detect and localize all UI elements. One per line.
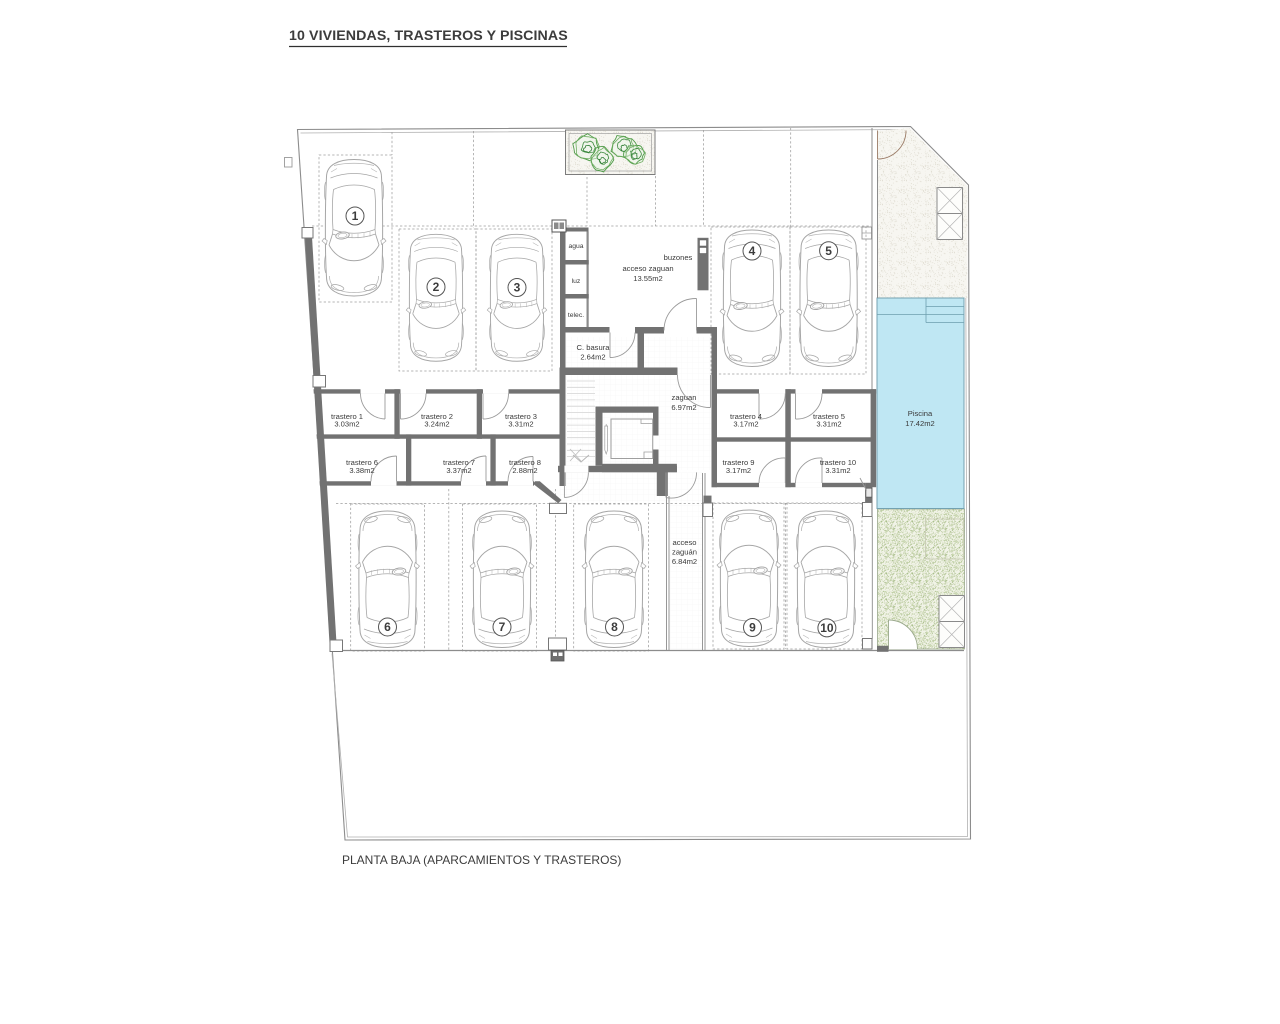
svg-text:13.55m2: 13.55m2 — [633, 274, 663, 283]
svg-text:3.31m2: 3.31m2 — [816, 420, 841, 429]
svg-text:6: 6 — [384, 620, 391, 634]
svg-text:3.31m2: 3.31m2 — [508, 420, 533, 429]
svg-text:3.17m2: 3.17m2 — [726, 466, 751, 475]
svg-text:3.38m2: 3.38m2 — [349, 466, 374, 475]
svg-text:PLANTA BAJA (APARCAMIENTOS Y T: PLANTA BAJA (APARCAMIENTOS Y TRASTEROS) — [342, 853, 621, 867]
svg-text:telec.: telec. — [568, 312, 584, 319]
svg-text:2.88m2: 2.88m2 — [512, 466, 537, 475]
svg-text:10: 10 — [820, 621, 834, 635]
svg-text:3.17m2: 3.17m2 — [733, 420, 758, 429]
svg-text:buzones: buzones — [664, 253, 693, 262]
svg-text:acceso: acceso — [672, 538, 696, 547]
svg-text:2.64m2: 2.64m2 — [580, 353, 605, 362]
svg-text:3.03m2: 3.03m2 — [334, 420, 359, 429]
svg-text:6.97m2: 6.97m2 — [671, 403, 696, 412]
svg-text:8: 8 — [611, 620, 618, 634]
svg-text:agua: agua — [568, 243, 583, 250]
svg-text:5: 5 — [825, 244, 832, 258]
svg-text:4: 4 — [749, 244, 756, 258]
svg-text:1: 1 — [352, 209, 359, 223]
svg-text:9: 9 — [749, 621, 756, 635]
svg-text:Piscina: Piscina — [908, 409, 933, 418]
svg-text:3.31m2: 3.31m2 — [825, 466, 850, 475]
svg-text:10 VIVIENDAS, TRASTEROS Y PISC: 10 VIVIENDAS, TRASTEROS Y PISCINAS — [289, 28, 568, 44]
svg-text:17.42m2: 17.42m2 — [905, 419, 935, 428]
svg-text:6.84m2: 6.84m2 — [672, 557, 697, 566]
svg-text:7: 7 — [499, 620, 506, 634]
svg-text:zaguan: zaguan — [672, 393, 697, 402]
svg-text:zaguán: zaguán — [672, 548, 697, 557]
svg-text:3.24m2: 3.24m2 — [424, 420, 449, 429]
svg-text:2: 2 — [433, 280, 440, 294]
svg-text:3.37m2: 3.37m2 — [446, 466, 471, 475]
svg-text:luz: luz — [572, 278, 581, 285]
svg-text:3: 3 — [514, 281, 521, 295]
svg-text:acceso zaguan: acceso zaguan — [622, 264, 673, 273]
svg-text:C. basura: C. basura — [577, 343, 611, 352]
